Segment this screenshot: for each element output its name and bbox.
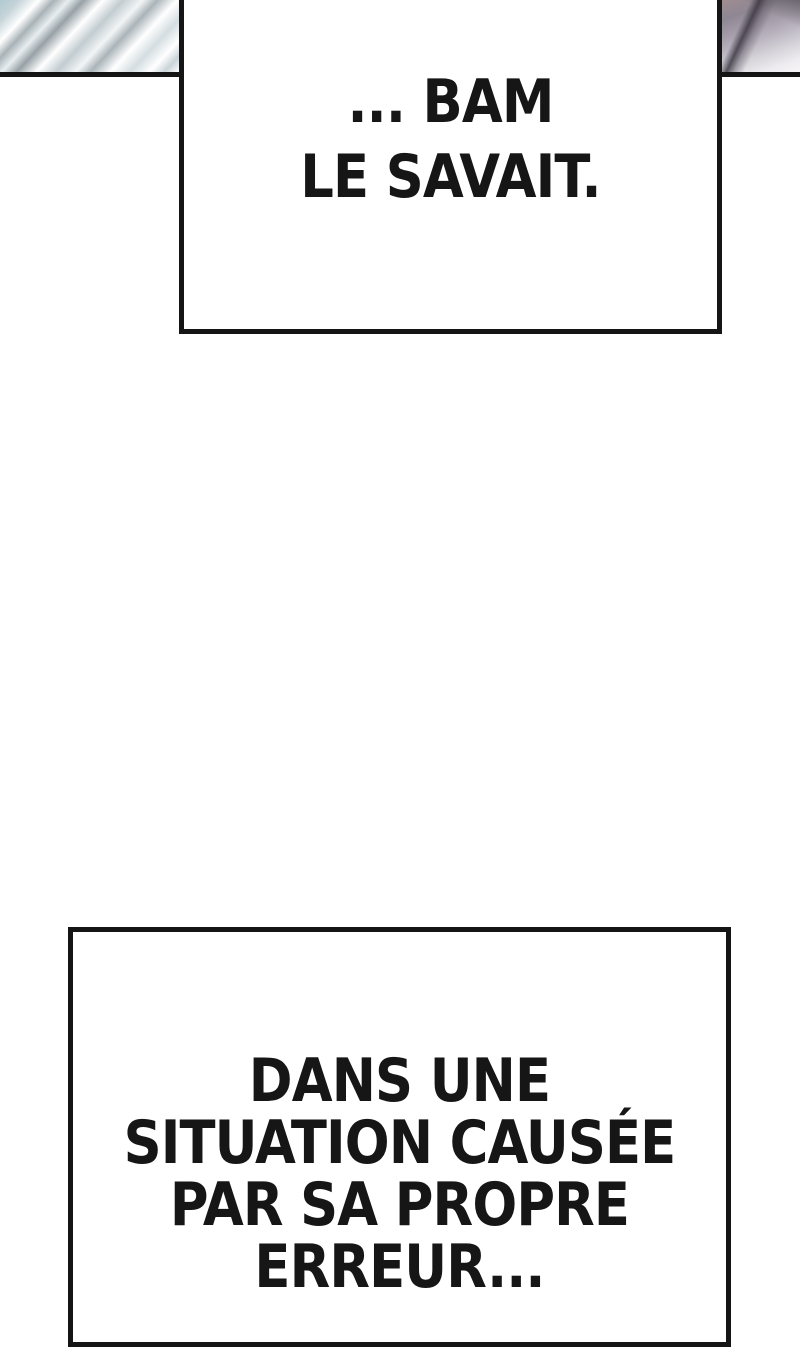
caption-line: LE SAVAIT. — [216, 140, 685, 215]
top-right-art-fragment — [722, 0, 800, 77]
caption-line: SITUATION CAUSÉE — [112, 1112, 687, 1174]
caption-bottom-text: DANS UNE SITUATION CAUSÉE PAR SA PROPRE … — [112, 1050, 687, 1298]
caption-line: PAR SA PROPRE — [112, 1174, 687, 1236]
caption-line: DANS UNE — [112, 1050, 687, 1112]
caption-box-top: ... BAM LE SAVAIT. — [179, 0, 722, 334]
caption-box-bottom: DANS UNE SITUATION CAUSÉE PAR SA PROPRE … — [68, 927, 731, 1347]
caption-line: ERREUR... — [112, 1236, 687, 1298]
caption-top-text: ... BAM LE SAVAIT. — [216, 65, 685, 215]
caption-line: ... BAM — [216, 65, 685, 140]
top-left-art-fragment — [0, 0, 179, 77]
